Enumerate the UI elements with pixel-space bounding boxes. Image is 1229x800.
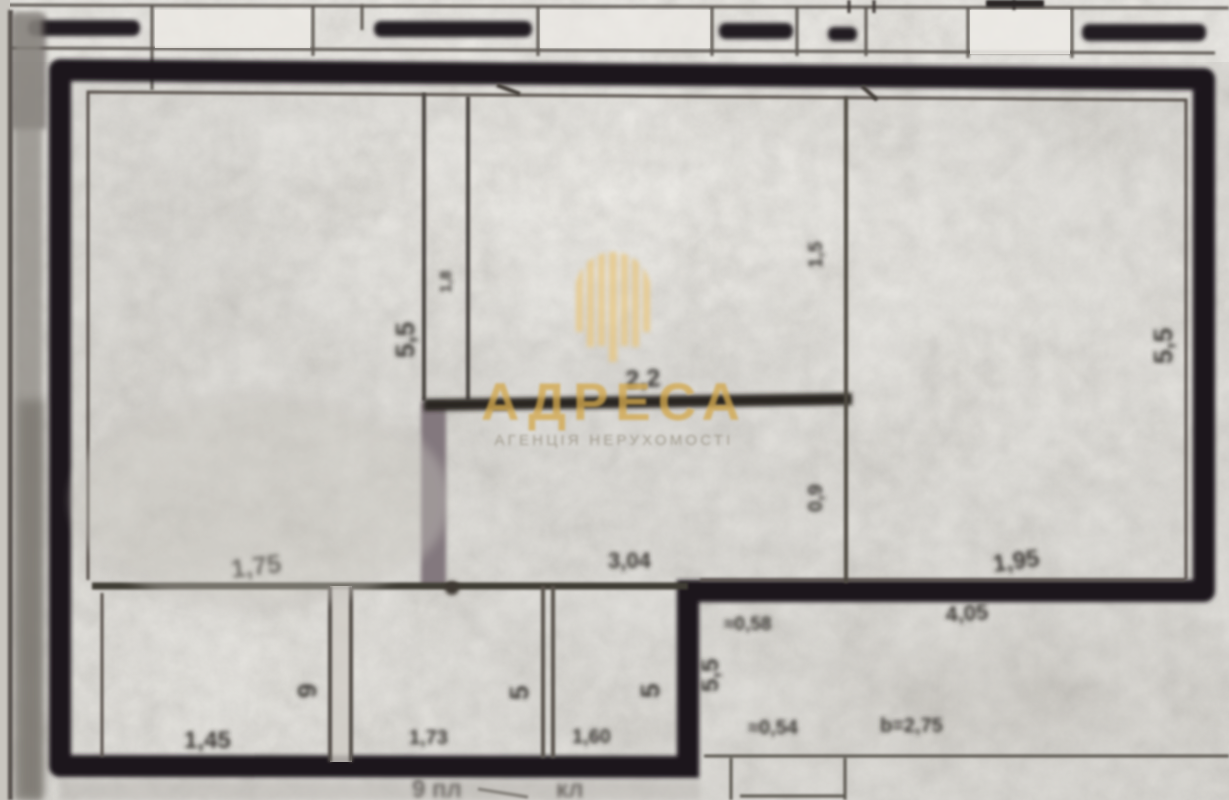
svg-text:1,5: 1,5 (806, 241, 827, 268)
svg-text:≈0,58: ≈0,58 (724, 614, 771, 635)
svg-text:1,45: 1,45 (184, 727, 231, 754)
svg-text:АДРЕСА: АДРЕСА (481, 373, 747, 432)
svg-text:4,05: 4,05 (945, 599, 989, 627)
svg-text:9: 9 (292, 684, 322, 698)
svg-text:5: 5 (504, 686, 534, 700)
svg-text:1,60: 1,60 (572, 726, 611, 748)
svg-text:5: 5 (635, 684, 665, 698)
svg-text:3,04: 3,04 (608, 548, 652, 573)
svg-text:1,8: 1,8 (438, 271, 455, 293)
svg-text:1,73: 1,73 (409, 727, 448, 749)
svg-text:5,5: 5,5 (697, 659, 724, 692)
svg-text:5,5: 5,5 (390, 322, 420, 358)
svg-text:≈0,54: ≈0,54 (748, 717, 799, 739)
svg-text:АГЕНЦІЯ НЕРУХОМОСТІ: АГЕНЦІЯ НЕРУХОМОСТІ (494, 432, 733, 449)
svg-text:0,9: 0,9 (805, 484, 827, 512)
svg-text:5,5: 5,5 (1148, 328, 1178, 364)
svg-text:b=2,75: b=2,75 (880, 715, 943, 737)
